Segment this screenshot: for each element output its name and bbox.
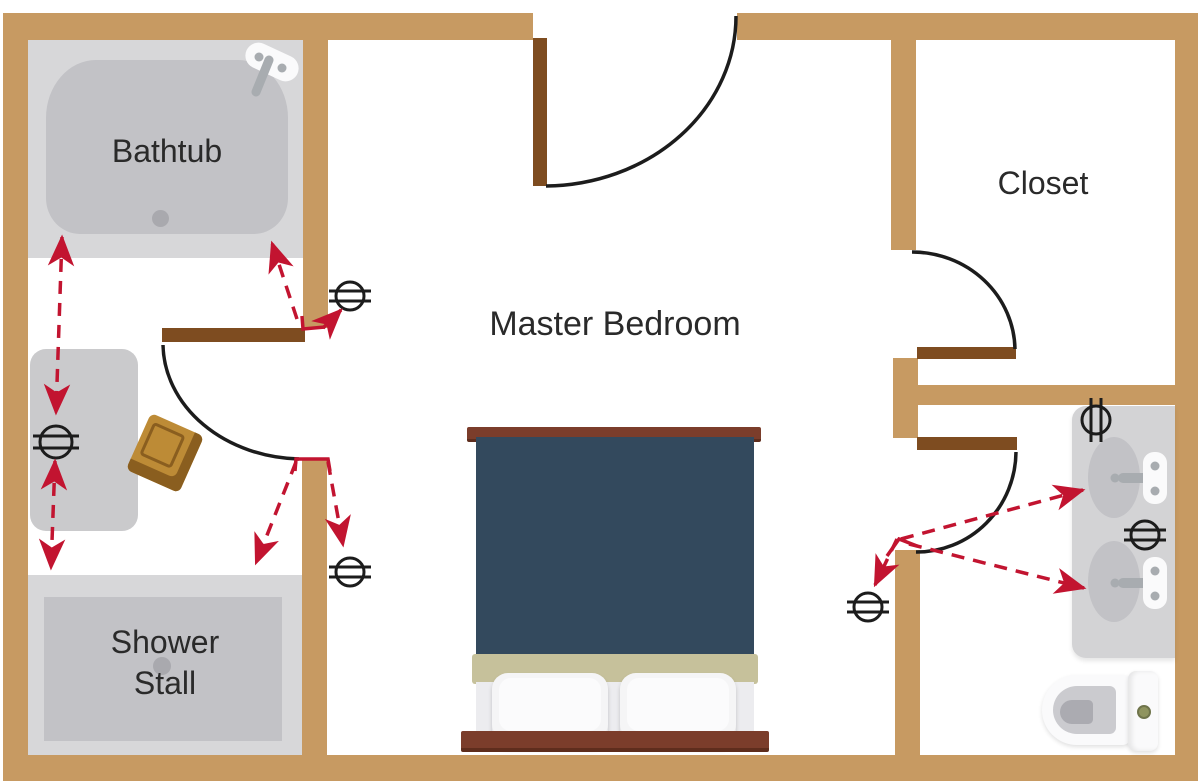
wall-bathroom-east-upper [303, 40, 328, 328]
right-bathroom-door [917, 437, 1017, 450]
sink-basin-bottom [1088, 541, 1140, 622]
basket-inner-panel [139, 422, 186, 469]
wall-bathroom-east-lower [302, 458, 327, 755]
toilet-flush-button [1137, 705, 1151, 719]
outlet-symbol-bedroom-door-right [847, 593, 889, 621]
toilet-bowl-inner [1060, 700, 1093, 724]
left-bathroom-door [162, 328, 305, 342]
arrow-door-to-sink-top [901, 490, 1083, 539]
closet-door-swing-arc [912, 252, 1015, 349]
vanity-counter [30, 349, 138, 531]
closet-door [917, 347, 1016, 359]
outlet-symbol-bath-door-bottom [329, 558, 371, 586]
closet-label: Closet [943, 165, 1143, 202]
sink-basin-top [1088, 437, 1140, 518]
bedroom-entry-door [533, 38, 547, 186]
arrow-door-to-sink-bottom [909, 544, 1084, 588]
bed-comforter [476, 437, 754, 659]
shower-label-line1: Shower [28, 622, 302, 663]
wall-right-lower [895, 550, 920, 755]
wall-bottom [3, 755, 1197, 781]
shower-label-line2: Stall [28, 663, 302, 704]
right-bathroom-door-swing-arc [916, 452, 1016, 552]
master-bedroom-label: Master Bedroom [420, 305, 810, 344]
wall-left [3, 13, 28, 781]
wall-closet-west [891, 40, 916, 250]
outlet-symbol-bath-door-top [329, 282, 371, 310]
shower-stall-label: Shower Stall [28, 622, 302, 704]
wall-top-right [737, 13, 1197, 40]
wall-hall-horizontal [913, 385, 1175, 405]
bed-headboard [461, 731, 769, 752]
floor-plan: Bathtub Shower Stall Master Bedroom Clos… [0, 0, 1200, 784]
entry-door-swing-arc [546, 16, 736, 186]
wall-right [1175, 13, 1198, 781]
arrow-door-to-bedroom-outlet [875, 539, 897, 585]
arrow-door-to-shower [256, 462, 296, 563]
bathtub-label: Bathtub [46, 133, 288, 170]
bathtub-drain [152, 210, 169, 227]
wall-top-left [3, 13, 533, 40]
arrow-door-to-bottom-outlet [328, 462, 343, 545]
